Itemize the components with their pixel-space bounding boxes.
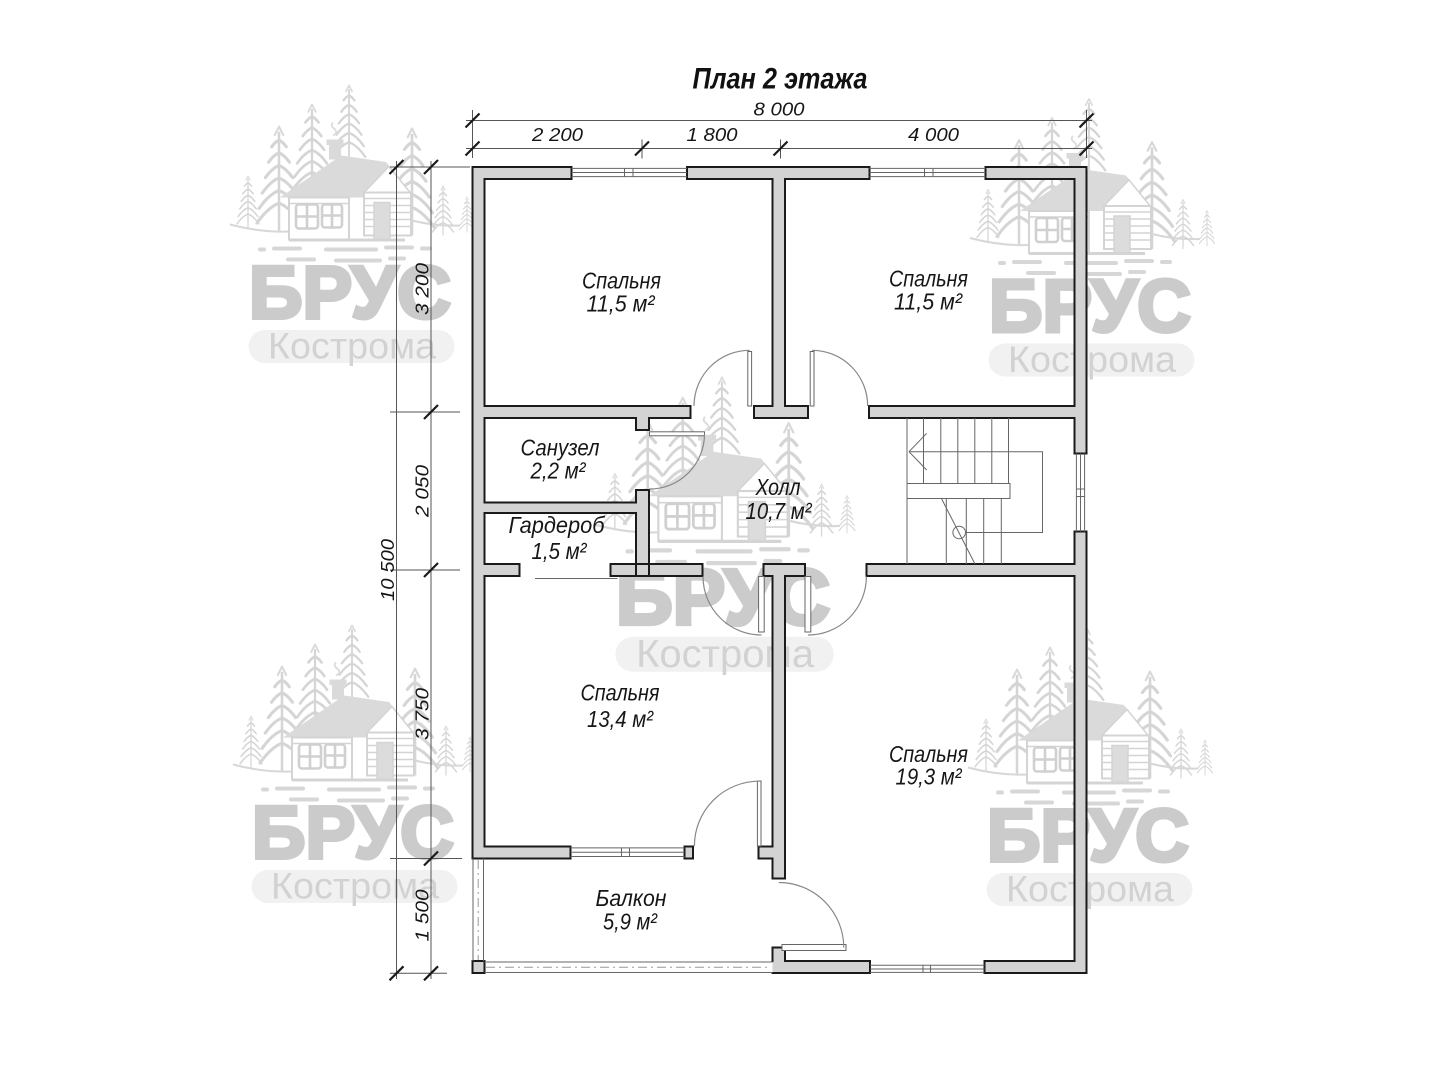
svg-text:1 500: 1 500 (412, 889, 433, 942)
svg-text:Гардероб: Гардероб (509, 512, 606, 538)
svg-text:4 000: 4 000 (908, 124, 960, 145)
svg-text:11,5 м²: 11,5 м² (894, 289, 963, 315)
svg-text:10,7 м²: 10,7 м² (746, 498, 813, 524)
svg-text:2 200: 2 200 (531, 124, 584, 145)
svg-text:8 000: 8 000 (754, 99, 806, 120)
svg-text:2,2 м²: 2,2 м² (530, 458, 587, 484)
svg-text:План 2 этажа: План 2 этажа (693, 63, 868, 96)
svg-text:19,3 м²: 19,3 м² (896, 764, 963, 790)
svg-text:5,9 м²: 5,9 м² (603, 909, 658, 935)
svg-text:Спальня: Спальня (581, 680, 660, 706)
svg-text:2 050: 2 050 (412, 464, 433, 518)
svg-text:1,5 м²: 1,5 м² (532, 538, 588, 564)
svg-text:Балкон: Балкон (596, 885, 667, 911)
svg-text:13,4 м²: 13,4 м² (587, 706, 654, 732)
svg-text:10 500: 10 500 (377, 538, 398, 601)
svg-text:Холл: Холл (755, 474, 801, 500)
svg-text:3 200: 3 200 (412, 262, 433, 315)
svg-text:3 750: 3 750 (412, 687, 433, 740)
svg-text:1 800: 1 800 (687, 124, 739, 145)
svg-text:11,5 м²: 11,5 м² (587, 291, 656, 317)
